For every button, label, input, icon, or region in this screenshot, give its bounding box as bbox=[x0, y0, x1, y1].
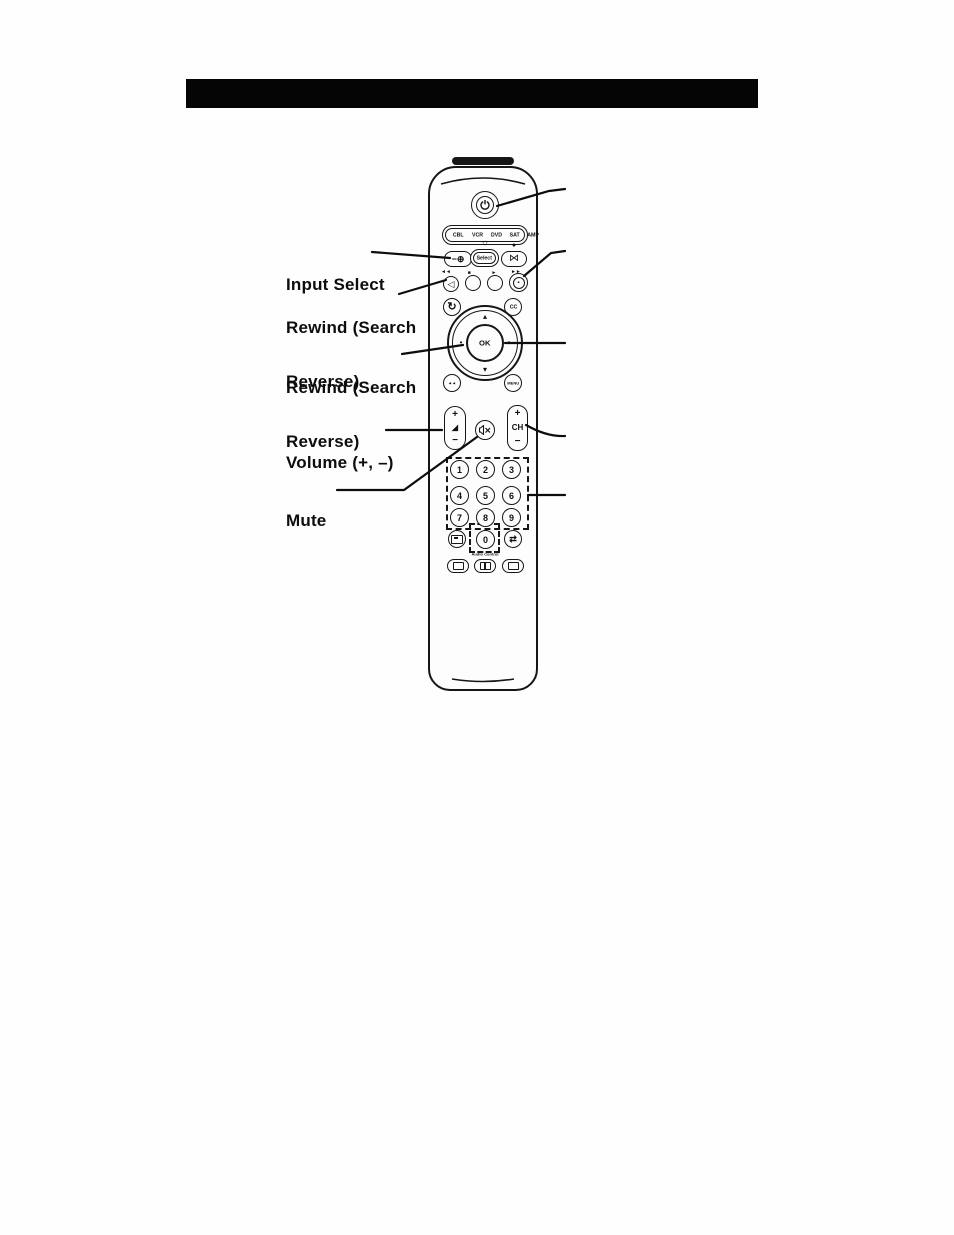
rewind-icon: ◁ bbox=[448, 280, 455, 289]
ok-label: OK bbox=[479, 339, 490, 348]
channel-label: CH bbox=[512, 424, 524, 432]
key-3-label: 3 bbox=[509, 465, 514, 475]
key-2-label: 2 bbox=[483, 465, 488, 475]
power-button[interactable] bbox=[471, 191, 499, 219]
nav-left-icon[interactable]: • bbox=[457, 338, 465, 347]
key-9[interactable]: 9 bbox=[502, 508, 521, 527]
device-label-amp[interactable]: AMP bbox=[527, 232, 539, 238]
record-dot-icon: ● bbox=[508, 241, 520, 251]
bottom-center-oval-icon bbox=[480, 562, 491, 570]
key-1[interactable]: 1 bbox=[450, 460, 469, 479]
label-rewind-1-line1: Rewind (Search bbox=[286, 319, 416, 337]
select-button[interactable]: Select bbox=[470, 249, 499, 267]
replay-button[interactable]: ↻ bbox=[443, 298, 461, 316]
volume-rocker[interactable]: + ◢ − bbox=[444, 406, 466, 450]
skip-back-icon: ◄◄ bbox=[448, 381, 456, 386]
audio-control-caption: Audio Control bbox=[455, 549, 515, 558]
picture-format-icon: ⋈ bbox=[509, 254, 519, 264]
screen-icon bbox=[451, 535, 463, 544]
key-7-label: 7 bbox=[457, 513, 462, 523]
key-1-label: 1 bbox=[457, 465, 462, 475]
bottom-center-oval-button[interactable] bbox=[474, 559, 496, 573]
key-0-label: 0 bbox=[483, 535, 488, 545]
mute-button[interactable] bbox=[475, 420, 495, 440]
channel-rocker[interactable]: + CH − bbox=[507, 405, 528, 451]
play-button[interactable] bbox=[487, 275, 503, 291]
fast-forward-button[interactable]: ▪ bbox=[509, 273, 528, 292]
volume-plus-label[interactable]: + bbox=[452, 410, 458, 420]
remote-top-shadow bbox=[452, 157, 514, 165]
page-header-bar bbox=[186, 79, 758, 108]
bottom-left-oval-button[interactable] bbox=[447, 559, 469, 573]
key-0[interactable]: 0 bbox=[476, 530, 495, 549]
channel-plus-label[interactable]: + bbox=[515, 409, 521, 419]
audio-control-label: Audio Control bbox=[472, 551, 499, 556]
key-8-label: 8 bbox=[483, 513, 488, 523]
key-9-label: 9 bbox=[509, 513, 514, 523]
menu-button[interactable]: MENU bbox=[504, 374, 522, 392]
power-ring bbox=[476, 196, 494, 214]
key-6[interactable]: 6 bbox=[502, 486, 521, 505]
label-volume-line1: Volume (+, –) bbox=[286, 454, 394, 472]
bottom-right-oval-icon bbox=[508, 562, 519, 570]
power-icon bbox=[480, 200, 490, 210]
key-8[interactable]: 8 bbox=[476, 508, 495, 527]
volume-minus-label[interactable]: − bbox=[452, 436, 458, 446]
device-label-cbl[interactable]: CBL bbox=[453, 232, 464, 238]
stop-button[interactable] bbox=[465, 275, 481, 291]
key-3[interactable]: 3 bbox=[502, 460, 521, 479]
label-rewind-2-line1: Rewind (Search bbox=[286, 379, 416, 397]
label-mute: Mute bbox=[286, 476, 326, 566]
picture-format-button[interactable]: ⋈ bbox=[501, 251, 527, 267]
screen-info-button[interactable] bbox=[448, 530, 466, 548]
menu-label: MENU bbox=[507, 381, 519, 386]
nav-down-icon[interactable]: ▾ bbox=[480, 365, 490, 374]
remote-control: CBL VCR DVD SAT AMP ☼ ● −⊕ Select ⋈ ◄◄ ■… bbox=[428, 166, 538, 691]
device-label-sat[interactable]: SAT bbox=[509, 232, 519, 238]
replay-icon: ↻ bbox=[447, 302, 456, 313]
rewind-mark-icon: ◄◄ bbox=[441, 270, 451, 275]
fast-forward-ring: ▪ bbox=[513, 277, 525, 289]
fast-forward-icon: ▪ bbox=[517, 280, 519, 286]
key-7[interactable]: 7 bbox=[450, 508, 469, 527]
channel-minus-label[interactable]: − bbox=[515, 437, 521, 447]
key-2[interactable]: 2 bbox=[476, 460, 495, 479]
pip-icon: ⇄ bbox=[509, 535, 517, 544]
label-mute-line1: Mute bbox=[286, 512, 326, 530]
skip-back-button[interactable]: ◄◄ bbox=[443, 374, 461, 392]
closed-caption-label: CC bbox=[509, 304, 517, 310]
key-6-label: 6 bbox=[509, 491, 514, 501]
manual-page: CBL VCR DVD SAT AMP ☼ ● −⊕ Select ⋈ ◄◄ ■… bbox=[0, 0, 954, 1235]
pip-button[interactable]: ⇄ bbox=[504, 530, 522, 548]
nav-up-icon[interactable]: ▴ bbox=[480, 312, 490, 321]
rewind-button[interactable]: ◁ bbox=[443, 276, 459, 292]
bottom-left-oval-icon bbox=[453, 562, 464, 570]
input-select-button[interactable]: −⊕ bbox=[444, 251, 472, 267]
key-4-label: 4 bbox=[457, 491, 462, 501]
key-4[interactable]: 4 bbox=[450, 486, 469, 505]
input-select-icon: −⊕ bbox=[452, 255, 465, 264]
select-star-icon: ☼ bbox=[477, 237, 493, 247]
mute-icon bbox=[479, 425, 491, 435]
key-5[interactable]: 5 bbox=[476, 486, 495, 505]
nav-right-icon[interactable]: • bbox=[505, 338, 513, 347]
volume-icon: ◢ bbox=[452, 424, 458, 432]
select-label: Select bbox=[477, 255, 492, 261]
bottom-right-oval-button[interactable] bbox=[502, 559, 524, 573]
key-5-label: 5 bbox=[483, 491, 488, 501]
ok-button[interactable]: OK bbox=[466, 324, 504, 362]
